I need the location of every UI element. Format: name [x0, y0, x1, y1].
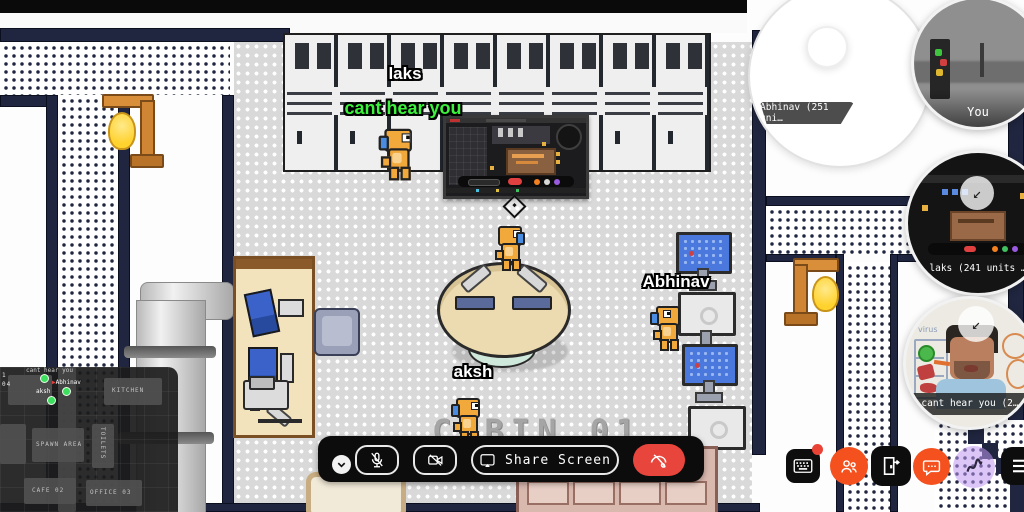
minimap-player-dot [47, 396, 56, 405]
loading-bubble [806, 26, 848, 68]
bubble-label-speaker: cant hear you (2… [906, 398, 1024, 409]
share-screen-icon [479, 453, 496, 468]
player-speech-bubble: cant hear you [344, 98, 461, 119]
toolbar-expand-button[interactable] [332, 455, 351, 474]
light-bulb [812, 276, 839, 312]
shared-screen-tv[interactable] [443, 115, 589, 199]
whiteboard-text: virus [918, 325, 937, 334]
camera-toggle-button[interactable] [413, 445, 457, 475]
bubble-label-you: You [914, 105, 1024, 119]
office-chair-prop[interactable] [314, 308, 360, 356]
corridor-floor [0, 42, 230, 95]
video-bubble-you[interactable]: You [911, 0, 1024, 130]
wave-emote-button[interactable] [953, 446, 995, 488]
chevron-down-icon [336, 459, 347, 470]
bubble-label-laks: laks (241 units … [908, 263, 1024, 274]
minimap-edge-label: 04 [2, 381, 11, 388]
keyboard-icon [793, 458, 813, 474]
player-sprite-abhinav[interactable] [652, 306, 682, 350]
chat-bubble-icon [922, 458, 941, 476]
arrow-down-left-icon: ↙ [972, 184, 981, 202]
minimap-room-office: OFFICE 03 [90, 489, 132, 496]
video-bubble-abhinav[interactable] [748, 0, 932, 168]
mic-toggle-button[interactable] [355, 445, 399, 475]
menu-button[interactable] [1001, 447, 1024, 485]
camera-off-icon [426, 452, 445, 469]
people-icon [839, 457, 859, 475]
call-toolbar: Share Screen [318, 436, 704, 482]
participants-button[interactable] [830, 447, 868, 485]
arrow-down-left-icon: ↙ [971, 315, 980, 333]
locker-vents [287, 43, 707, 69]
minimap-panel[interactable]: KITCHEN SPAWN AREA TOILETS CAFE 02 OFFIC… [0, 367, 178, 512]
minimap-edge-label: 1 [2, 372, 7, 379]
minimap-room-spawn: SPAWN AREA [36, 441, 82, 448]
wall [0, 95, 48, 107]
notification-dot [812, 444, 823, 455]
diagonal-wall [968, 428, 984, 444]
video-bubble-laks[interactable]: laks (241 units … [905, 150, 1024, 296]
hamburger-menu-icon [1011, 459, 1024, 473]
player-name-aksh: aksh [454, 362, 493, 382]
minimap-room-cafe: CAFE 02 [32, 487, 64, 494]
light-bulb [108, 112, 136, 150]
wave-icon [963, 456, 985, 478]
player-sprite-laks[interactable] [380, 129, 415, 180]
minimap-player-tag: ▶Abhinav [52, 379, 81, 386]
share-screen-label: Share Screen [505, 453, 611, 468]
top-black-bar [0, 0, 747, 13]
collapse-bubble-button[interactable]: ↙ [960, 176, 994, 210]
minimap-player-dot [62, 387, 71, 396]
phone-off-icon [647, 450, 671, 470]
exit-room-button[interactable] [871, 446, 911, 486]
desk-prop[interactable] [233, 256, 315, 438]
app-window: CABIN 01 [0, 0, 1024, 512]
share-screen-button[interactable]: Share Screen [471, 445, 619, 475]
player-name-abhinav: Abhinav [642, 272, 709, 292]
minimap-player-tag: cant hear you [26, 367, 73, 374]
meeting-table-prop[interactable] [437, 262, 571, 358]
minimap-player-tag: aksh [36, 388, 50, 395]
collapse-bubble-button[interactable]: ↙ [958, 306, 994, 342]
minimap-room-toilets: TOILETS [99, 427, 106, 459]
minimap-player-dot [40, 374, 49, 383]
distance-tag-abhinav: Abhinav (251 uni… [760, 102, 854, 124]
minimap-room-kitchen: KITCHEN [112, 387, 144, 394]
leave-call-button[interactable] [633, 444, 685, 476]
mic-off-icon [368, 451, 386, 469]
printer-prop [243, 380, 289, 410]
player-name-laks: laks [388, 64, 421, 84]
chat-button[interactable] [913, 448, 950, 485]
player-sprite-aksh[interactable] [494, 226, 524, 270]
wall-top [0, 28, 290, 42]
exit-door-icon [881, 455, 901, 477]
